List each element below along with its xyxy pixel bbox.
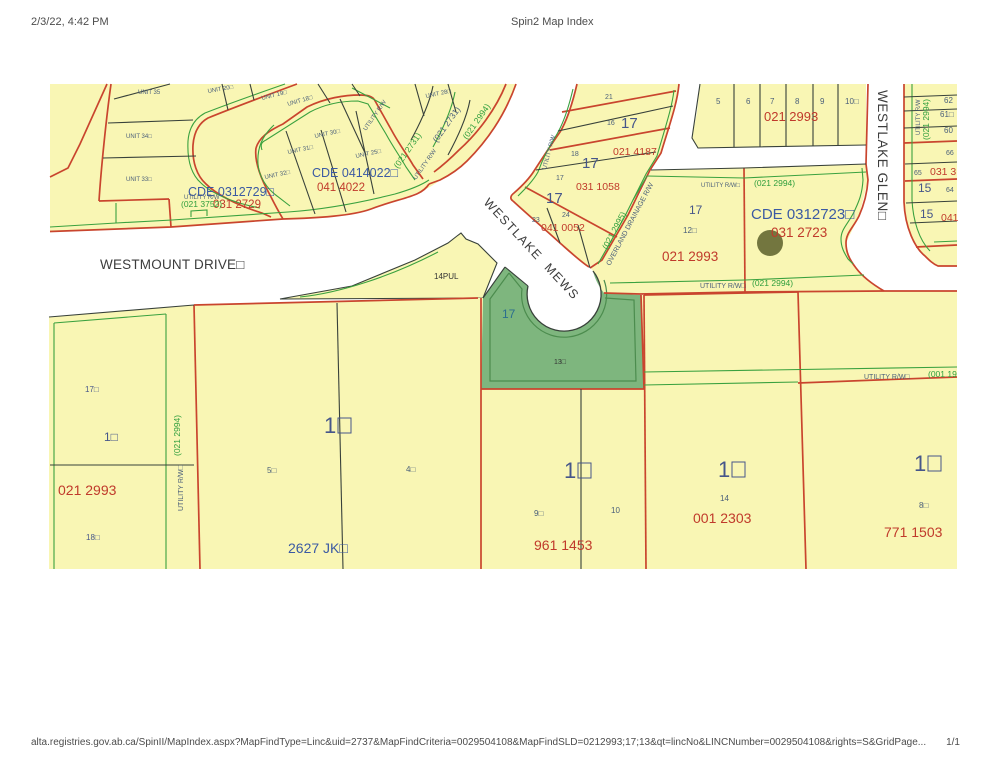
svg-text:041 4022: 041 4022 <box>317 182 365 194</box>
svg-text:(021 2994): (021 2994) <box>754 178 795 188</box>
svg-text:62: 62 <box>944 96 953 105</box>
svg-text:66: 66 <box>946 150 954 157</box>
svg-text:CDE 0414022□: CDE 0414022□ <box>312 166 399 180</box>
svg-text:17: 17 <box>556 175 564 182</box>
svg-text:CDE 0312723□: CDE 0312723□ <box>751 206 854 223</box>
svg-text:17: 17 <box>546 190 563 207</box>
svg-text:041 0052: 041 0052 <box>541 222 585 234</box>
svg-text:UTILITY R/W□: UTILITY R/W□ <box>178 465 185 511</box>
svg-text:021 2993: 021 2993 <box>764 109 818 124</box>
svg-text:18: 18 <box>571 151 579 158</box>
svg-text:UTILITY R/W□: UTILITY R/W□ <box>700 283 746 290</box>
svg-text:031 1058: 031 1058 <box>576 181 620 193</box>
svg-text:60: 60 <box>944 126 953 135</box>
svg-text:65: 65 <box>914 170 922 177</box>
svg-text:771 1503: 771 1503 <box>884 524 943 540</box>
svg-text:UTILITY R/W: UTILITY R/W <box>916 99 922 135</box>
svg-text:9□: 9□ <box>534 509 543 518</box>
svg-text:021 2993: 021 2993 <box>662 249 718 264</box>
svg-text:UNIT 33□: UNIT 33□ <box>126 177 152 183</box>
svg-text:UNIT 34□: UNIT 34□ <box>126 134 152 140</box>
svg-text:61□: 61□ <box>940 110 954 119</box>
svg-text:UTILITY R/W: UTILITY R/W <box>184 195 220 201</box>
svg-text:13□: 13□ <box>554 359 567 366</box>
svg-text:001 2303: 001 2303 <box>693 510 752 526</box>
svg-text:8: 8 <box>795 97 800 106</box>
svg-text:021 2993: 021 2993 <box>58 482 117 498</box>
svg-text:7: 7 <box>770 97 775 106</box>
svg-text:21: 21 <box>605 94 613 101</box>
svg-text:17□: 17□ <box>85 385 99 394</box>
svg-text:5□: 5□ <box>267 466 276 475</box>
svg-text:5: 5 <box>716 97 721 106</box>
svg-text:10: 10 <box>611 506 620 515</box>
svg-text:031 3: 031 3 <box>930 166 956 178</box>
svg-text:12□: 12□ <box>683 226 697 235</box>
svg-text:2627 JK□: 2627 JK□ <box>288 540 348 556</box>
svg-text:(021 2994): (021 2994) <box>921 99 931 140</box>
svg-text:UTILITY R/W□: UTILITY R/W□ <box>701 183 741 189</box>
svg-text:1: 1 <box>718 457 730 482</box>
svg-text:(021 2994): (021 2994) <box>172 415 182 456</box>
svg-text:8□: 8□ <box>919 501 928 510</box>
svg-text:021 4187: 021 4187 <box>613 146 657 158</box>
svg-text:041: 041 <box>941 212 959 224</box>
svg-text:24: 24 <box>562 212 570 219</box>
svg-text:23: 23 <box>532 217 540 224</box>
svg-text:(001 19: (001 19 <box>928 369 957 379</box>
svg-text:17: 17 <box>689 203 703 217</box>
svg-text:WESTLAKE GLEN□: WESTLAKE GLEN□ <box>875 90 890 221</box>
svg-text:031 2723: 031 2723 <box>771 225 827 240</box>
svg-text:10□: 10□ <box>845 97 859 106</box>
svg-text:15: 15 <box>920 207 934 221</box>
svg-text:961 1453: 961 1453 <box>534 537 593 553</box>
svg-text:1: 1 <box>564 458 576 483</box>
svg-text:16: 16 <box>607 120 615 127</box>
svg-text:64: 64 <box>946 187 954 194</box>
svg-text:1: 1 <box>324 413 336 438</box>
svg-text:4□: 4□ <box>406 465 415 474</box>
svg-text:(021 2994): (021 2994) <box>752 278 793 288</box>
svg-text:14: 14 <box>720 494 729 503</box>
svg-text:17: 17 <box>502 307 516 321</box>
svg-text:18□: 18□ <box>86 533 100 542</box>
svg-text:WESTMOUNT DRIVE□: WESTMOUNT DRIVE□ <box>100 257 245 272</box>
svg-text:17: 17 <box>621 115 638 132</box>
svg-text:14PUL: 14PUL <box>434 272 459 281</box>
svg-text:17: 17 <box>582 155 599 172</box>
svg-text:1□: 1□ <box>104 430 118 444</box>
svg-text:UNIT 35: UNIT 35 <box>138 90 161 96</box>
svg-text:UTILITY R/W□: UTILITY R/W□ <box>864 374 910 381</box>
svg-text:9: 9 <box>820 97 825 106</box>
svg-text:1: 1 <box>914 451 926 476</box>
svg-text:6: 6 <box>746 97 751 106</box>
svg-text:15: 15 <box>918 181 932 195</box>
